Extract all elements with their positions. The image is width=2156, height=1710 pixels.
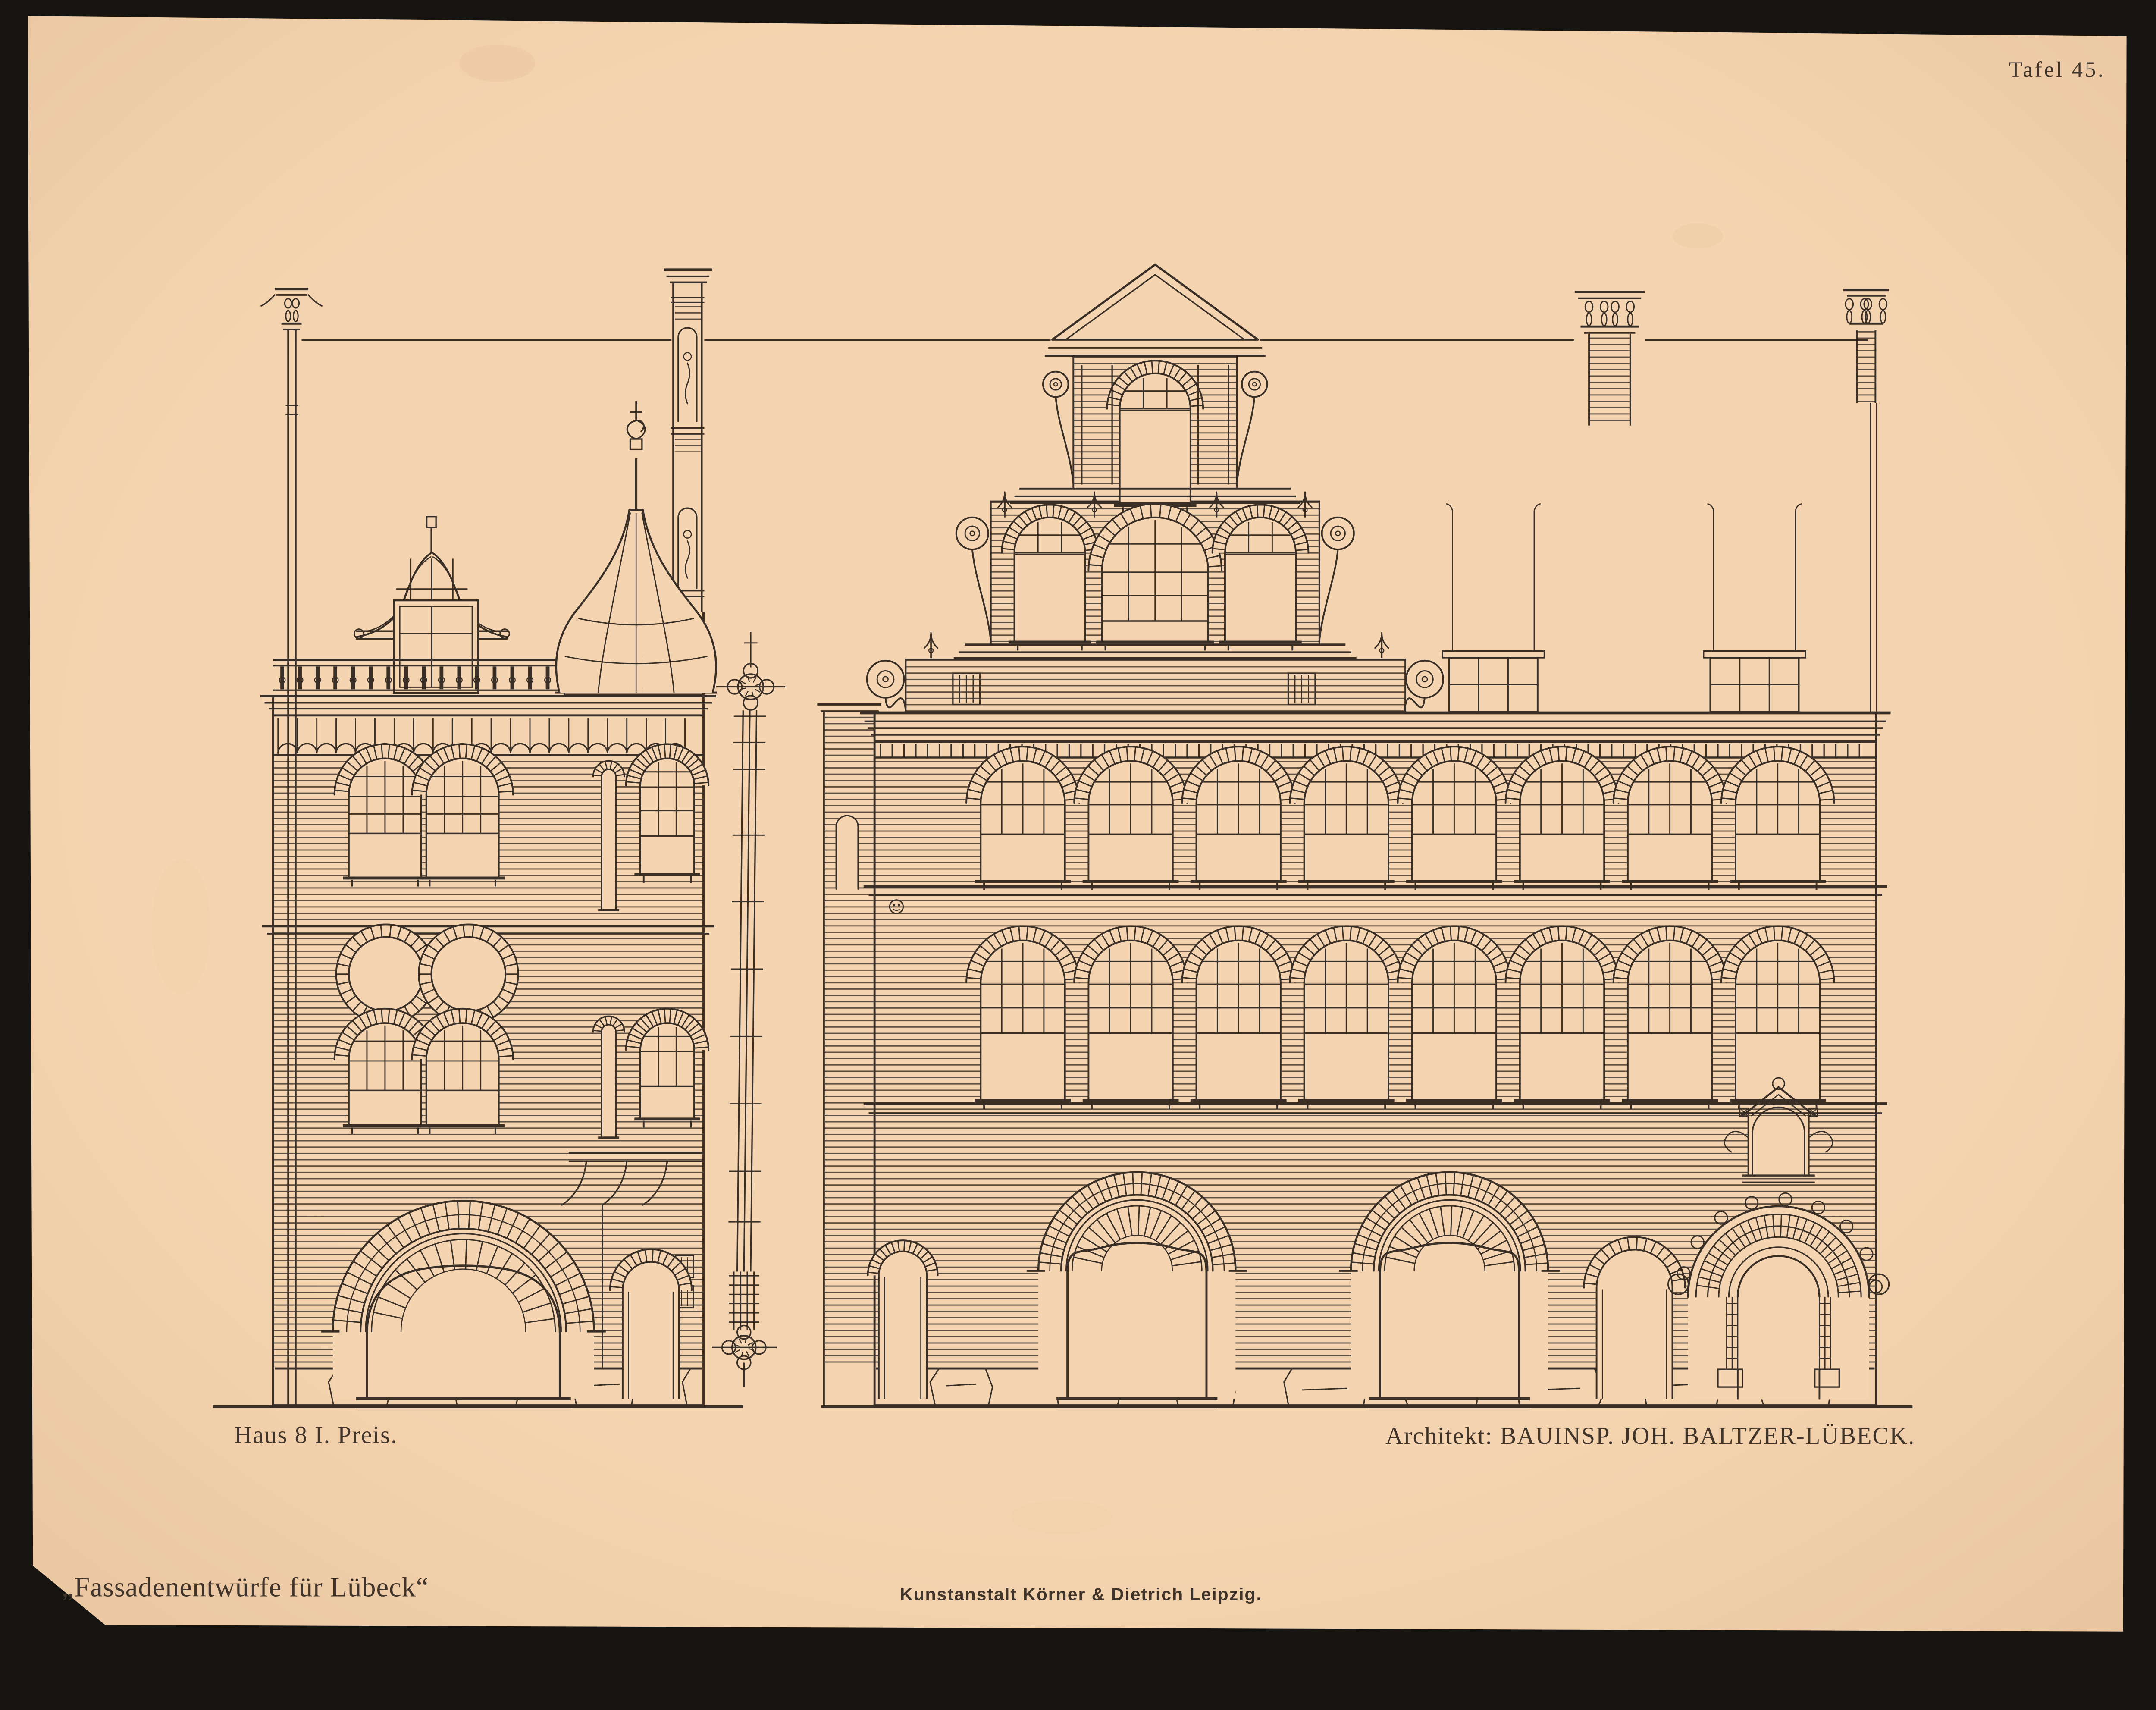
scanned-plate: Tafel 45. Haus 8 I. Preis. Architekt: BA…	[0, 0, 2156, 1671]
plate-number: Tafel 45.	[2009, 57, 2106, 82]
series-title: „Fassadenentwürfe für Lübeck“	[62, 1572, 429, 1603]
caption-left: Haus 8 I. Preis.	[234, 1421, 398, 1449]
caption-architect: Architekt: BAUINSP. JOH. BALTZER-LÜBECK.	[1385, 1421, 1915, 1450]
printer-imprint: Kunstanstalt Körner & Dietrich Leipzig.	[900, 1584, 1262, 1604]
plate-scan-drawing	[0, 0, 2156, 1671]
